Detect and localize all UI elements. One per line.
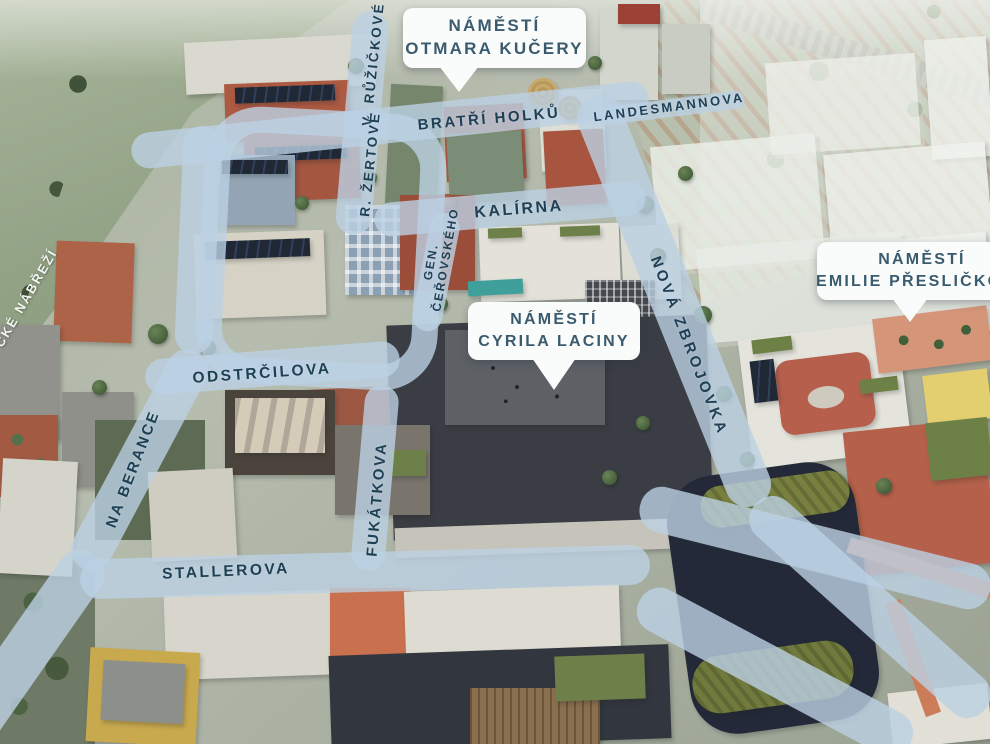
square-name-line1: NÁMĚSTÍ — [510, 309, 597, 331]
square-name-line2: EMILIE PŘESLIČKOVÉ — [816, 271, 990, 293]
square-bubble-emilie-preslickove: NÁMĚSTÍ EMILIE PŘESLIČKOVÉ — [817, 242, 990, 300]
green-roof-patch — [925, 417, 990, 481]
square-name-line1: NÁMĚSTÍ — [449, 15, 541, 38]
building-existing-red-roof — [618, 4, 660, 24]
rooftop-pool — [468, 279, 524, 297]
tree — [92, 380, 107, 395]
roof-tan — [235, 398, 325, 453]
building-white-small-row — [148, 468, 238, 562]
square-name-line2: CYRILA LACINY — [478, 331, 630, 353]
tree — [636, 416, 650, 430]
roof-gray-yellow-building — [100, 660, 185, 724]
green-roof-strip — [560, 225, 600, 236]
building-existing-tower-2 — [662, 24, 710, 94]
building-brick-river-tower — [53, 241, 134, 344]
green-roof-strip — [488, 227, 522, 238]
green-roof-patch — [554, 653, 646, 701]
tree — [588, 56, 602, 70]
square-bubble-cyrila-laciny: NÁMĚSTÍ CYRILA LACINY — [468, 302, 640, 360]
square-name-line2: OTMARA KUČERY — [405, 38, 583, 61]
square-name-line1: NÁMĚSTÍ — [878, 249, 965, 271]
masterplan-map: BRATŘÍ HOLKŮ LANDESMANNOVA V. RŮŽIČKOVÉ … — [0, 0, 990, 744]
tree — [602, 470, 617, 485]
tree — [678, 166, 693, 181]
square-bubble-otmara-kucery: NÁMĚSTÍ OTMARA KUČERY — [403, 8, 586, 68]
tree — [148, 324, 168, 344]
tree — [876, 478, 892, 494]
green-roof-patch — [390, 450, 426, 476]
solar-roof — [750, 359, 779, 404]
